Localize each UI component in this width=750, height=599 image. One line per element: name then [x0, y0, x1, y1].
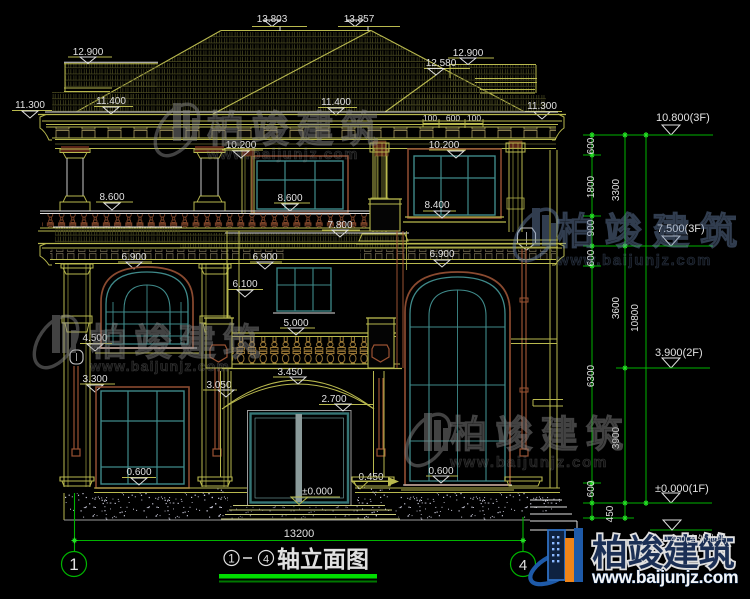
svg-text:3.050: 3.050: [206, 380, 231, 391]
svg-text:3600: 3600: [611, 296, 622, 319]
svg-text:12.900: 12.900: [73, 47, 104, 58]
svg-text:11.400: 11.400: [321, 97, 351, 108]
svg-text:3300: 3300: [611, 178, 622, 201]
svg-text:轴立面图: 轴立面图: [277, 546, 369, 572]
svg-text:www.baijunjz.com: www.baijunjz.com: [591, 567, 738, 587]
svg-text:8.600: 8.600: [99, 192, 124, 203]
svg-text:8.600: 8.600: [277, 193, 302, 204]
svg-text:8.400: 8.400: [424, 200, 449, 211]
svg-text:11.400: 11.400: [96, 96, 126, 107]
svg-text:600: 600: [586, 137, 597, 154]
svg-text:3.900(2F): 3.900(2F): [655, 347, 703, 359]
svg-text:10.200: 10.200: [429, 140, 460, 151]
svg-text:600: 600: [586, 480, 597, 497]
svg-text:柏竣建筑: 柏竣建筑: [207, 108, 386, 150]
svg-text:5.000: 5.000: [283, 318, 308, 329]
svg-text:±0.000: ±0.000: [302, 487, 333, 498]
svg-text:柏竣建筑: 柏竣建筑: [450, 413, 631, 455]
svg-text:12.580: 12.580: [426, 58, 457, 69]
svg-text:7.800: 7.800: [327, 220, 352, 231]
svg-text:柏竣建筑: 柏竣建筑: [90, 321, 267, 363]
svg-text:1: 1: [69, 555, 78, 574]
svg-text:www.baijunjz.com: www.baijunjz.com: [556, 252, 712, 269]
svg-text:2.700: 2.700: [321, 394, 346, 405]
svg-text:11.300: 11.300: [15, 100, 45, 111]
svg-text:柏竣建筑: 柏竣建筑: [557, 210, 748, 252]
svg-text:1: 1: [228, 552, 235, 566]
svg-text:6.900: 6.900: [121, 252, 146, 263]
svg-text:10800: 10800: [630, 304, 641, 332]
svg-text:4: 4: [263, 554, 269, 566]
svg-text:4: 4: [519, 557, 527, 574]
svg-text:450: 450: [605, 505, 616, 522]
svg-text:www.baijunjz.com: www.baijunjz.com: [89, 358, 230, 374]
svg-text:www.baijunjz.com: www.baijunjz.com: [449, 454, 608, 471]
svg-text:3.450: 3.450: [277, 367, 302, 378]
svg-text:www.baijunjz.com: www.baijunjz.com: [206, 146, 359, 163]
svg-text:6.900: 6.900: [252, 252, 277, 263]
svg-text:6.100: 6.100: [232, 279, 257, 290]
svg-text:6300: 6300: [586, 364, 597, 387]
svg-text:0.600: 0.600: [126, 467, 151, 478]
svg-text:12.900: 12.900: [453, 48, 484, 59]
svg-text:11.300: 11.300: [527, 101, 557, 112]
svg-text:-0.450(室外地坪): -0.450(室外地坪): [660, 533, 728, 544]
svg-text:6.900: 6.900: [429, 249, 454, 260]
svg-text:1800: 1800: [586, 175, 597, 198]
svg-text:3.300: 3.300: [82, 374, 107, 385]
svg-text:10.800(3F): 10.800(3F): [656, 112, 710, 124]
svg-text:13200: 13200: [284, 528, 315, 540]
